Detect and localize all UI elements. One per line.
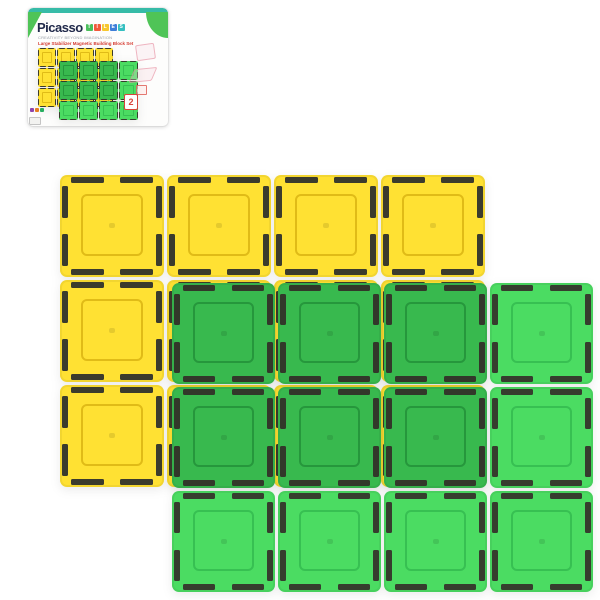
magnet-strip bbox=[550, 376, 582, 382]
magnet-strip bbox=[492, 342, 498, 373]
magnet-strip bbox=[386, 502, 392, 533]
magnet-strip bbox=[59, 63, 60, 69]
magnet-strip bbox=[117, 112, 118, 118]
magnet-strip bbox=[156, 444, 162, 476]
magnet-strip bbox=[81, 79, 87, 80]
magnet-strip bbox=[550, 584, 582, 590]
magnet-strip bbox=[178, 177, 210, 183]
magnet-strip bbox=[280, 294, 286, 325]
magnet-strip bbox=[263, 234, 269, 266]
tile-inner-outline bbox=[83, 85, 94, 96]
magnet-strip bbox=[77, 83, 78, 89]
magnet-strip bbox=[55, 50, 56, 56]
magnet-strip bbox=[477, 234, 483, 266]
magnet-strip bbox=[121, 119, 127, 120]
magnet-strip bbox=[38, 70, 39, 76]
magnet-strip bbox=[59, 48, 65, 49]
magnet-strip bbox=[97, 112, 98, 118]
magnet-strip bbox=[71, 387, 103, 393]
tile-inner-outline bbox=[63, 65, 74, 76]
magnet-strip bbox=[386, 550, 392, 581]
magnet-strip bbox=[62, 339, 68, 371]
magnet-strip bbox=[78, 48, 84, 49]
magnet-strip bbox=[479, 502, 485, 533]
magnet-strip bbox=[479, 342, 485, 373]
magnet-strip bbox=[137, 112, 138, 118]
mini-green-tile bbox=[59, 81, 78, 100]
box-corner-accent-right bbox=[146, 12, 168, 38]
magnet-strip bbox=[71, 282, 103, 288]
tile-inner-outline bbox=[83, 65, 94, 76]
magnet-strip bbox=[38, 99, 39, 105]
box-gray-chip bbox=[29, 117, 41, 125]
magnet-strip bbox=[61, 101, 67, 102]
magnet-strip bbox=[338, 376, 370, 382]
magnet-strip bbox=[48, 86, 54, 87]
magnet-strip bbox=[227, 177, 259, 183]
magnet-strip bbox=[156, 186, 162, 218]
yellow-tile bbox=[60, 385, 164, 487]
magnet-strip bbox=[492, 502, 498, 533]
magnet-strip bbox=[99, 103, 100, 109]
magnet-strip bbox=[71, 269, 103, 275]
certification-mark bbox=[30, 108, 34, 112]
magnet-strip bbox=[501, 480, 533, 486]
magnet-strip bbox=[550, 493, 582, 499]
magnet-strip bbox=[101, 61, 107, 62]
magnet-strip bbox=[90, 119, 96, 120]
magnet-strip bbox=[81, 119, 87, 120]
magnet-strip bbox=[232, 584, 264, 590]
magnet-strip bbox=[232, 389, 264, 395]
green-tile bbox=[384, 491, 487, 592]
magnet-strip bbox=[334, 177, 366, 183]
yellow-tile bbox=[60, 280, 164, 382]
mini-green-tile bbox=[59, 101, 78, 120]
magnet-strip bbox=[62, 291, 68, 323]
box-sketch-square bbox=[135, 43, 156, 61]
magnet-strip bbox=[81, 99, 87, 100]
magnet-strip bbox=[40, 88, 46, 89]
magnet-strip bbox=[267, 446, 273, 477]
box-art-green-grid bbox=[59, 61, 139, 121]
magnet-strip bbox=[48, 106, 54, 107]
magnet-strip bbox=[71, 374, 103, 380]
tile-inner-outline bbox=[63, 85, 74, 96]
magnet-strip bbox=[550, 389, 582, 395]
tile-inner-outline bbox=[42, 52, 53, 63]
magnet-strip bbox=[62, 396, 68, 428]
magnet-strip bbox=[174, 446, 180, 477]
magnet-strip bbox=[386, 342, 392, 373]
magnet-strip bbox=[117, 103, 118, 109]
magnet-strip bbox=[183, 285, 215, 291]
magnet-strip bbox=[386, 446, 392, 477]
magnet-strip bbox=[120, 479, 152, 485]
tile-center-mark bbox=[327, 331, 333, 336]
magnet-strip bbox=[97, 63, 98, 69]
magnet-strip bbox=[441, 177, 473, 183]
magnet-strip bbox=[77, 92, 78, 98]
magnet-strip bbox=[70, 81, 76, 82]
magnet-strip bbox=[55, 59, 56, 65]
magnet-strip bbox=[370, 186, 376, 218]
magnet-strip bbox=[119, 112, 120, 118]
green-tile bbox=[172, 387, 275, 488]
magnet-strip bbox=[57, 50, 58, 56]
magnet-strip bbox=[117, 83, 118, 89]
magnet-strip bbox=[119, 83, 120, 89]
mini-green-tile bbox=[99, 101, 118, 120]
magnet-strip bbox=[285, 177, 317, 183]
green-tile bbox=[384, 283, 487, 384]
magnet-strip bbox=[338, 584, 370, 590]
green-tile bbox=[278, 283, 381, 384]
magnet-strip bbox=[121, 79, 127, 80]
magnet-strip bbox=[97, 48, 103, 49]
mini-yellow-tile bbox=[38, 48, 56, 67]
magnet-strip bbox=[110, 81, 116, 82]
magnet-strip bbox=[550, 285, 582, 291]
magnet-strip bbox=[70, 61, 76, 62]
magnet-strip bbox=[395, 389, 427, 395]
magnet-strip bbox=[263, 186, 269, 218]
magnet-strip bbox=[61, 119, 67, 120]
brand-logo: Picasso TILES bbox=[37, 21, 125, 34]
certification-mark bbox=[35, 108, 39, 112]
green-tile bbox=[278, 387, 381, 488]
magnet-strip bbox=[99, 72, 100, 78]
magnet-strip bbox=[93, 50, 94, 56]
magnet-strip bbox=[90, 61, 96, 62]
magnet-strip bbox=[120, 177, 152, 183]
magnet-strip bbox=[77, 103, 78, 109]
magnet-strip bbox=[59, 103, 60, 109]
tile-center-mark bbox=[109, 328, 115, 333]
magnet-strip bbox=[338, 493, 370, 499]
brand-tagline: CREATIVITY BEYOND IMAGINATION bbox=[38, 35, 112, 40]
magnet-strip bbox=[120, 282, 152, 288]
magnet-strip bbox=[48, 66, 54, 67]
magnet-strip bbox=[79, 112, 80, 118]
magnet-strip bbox=[492, 550, 498, 581]
magnet-strip bbox=[61, 99, 67, 100]
magnet-strip bbox=[492, 398, 498, 429]
magnet-strip bbox=[267, 398, 273, 429]
magnet-strip bbox=[120, 374, 152, 380]
magnet-strip bbox=[183, 480, 215, 486]
magnet-strip bbox=[110, 99, 116, 100]
magnet-strip bbox=[59, 112, 60, 118]
tile-inner-outline bbox=[42, 92, 53, 103]
magnet-strip bbox=[81, 61, 87, 62]
tile-center-mark bbox=[221, 435, 227, 440]
magnet-strip bbox=[444, 493, 476, 499]
magnet-strip bbox=[479, 398, 485, 429]
magnet-strip bbox=[90, 101, 96, 102]
magnet-strip bbox=[101, 79, 107, 80]
magnet-strip bbox=[99, 112, 100, 118]
magnet-strip bbox=[81, 81, 87, 82]
magnet-strip bbox=[492, 446, 498, 477]
magnet-strip bbox=[59, 72, 60, 78]
magnet-strip bbox=[373, 294, 379, 325]
green-tile bbox=[384, 387, 487, 488]
magnet-strip bbox=[289, 376, 321, 382]
magnet-strip bbox=[38, 79, 39, 85]
magnet-strip bbox=[48, 68, 54, 69]
magnet-strip bbox=[117, 92, 118, 98]
magnet-strip bbox=[55, 90, 56, 96]
magnet-strip bbox=[156, 396, 162, 428]
magnet-strip bbox=[267, 550, 273, 581]
magnet-strip bbox=[48, 88, 54, 89]
tile-inner-outline bbox=[63, 105, 74, 116]
magnet-strip bbox=[232, 376, 264, 382]
magnet-strip bbox=[183, 389, 215, 395]
magnet-strip bbox=[444, 376, 476, 382]
brand-block-s: S bbox=[118, 24, 125, 31]
magnet-strip bbox=[232, 480, 264, 486]
magnet-strip bbox=[105, 48, 111, 49]
mini-green-tile bbox=[59, 61, 78, 80]
magnet-strip bbox=[62, 234, 68, 266]
magnet-strip bbox=[280, 502, 286, 533]
mini-green-tile bbox=[79, 101, 98, 120]
tile-center-mark bbox=[327, 435, 333, 440]
magnet-strip bbox=[280, 398, 286, 429]
green-tile bbox=[172, 491, 275, 592]
magnet-strip bbox=[86, 48, 92, 49]
certification-mark bbox=[40, 108, 44, 112]
brand-block-t: T bbox=[86, 24, 93, 31]
magnet-strip bbox=[395, 493, 427, 499]
magnet-strip bbox=[97, 92, 98, 98]
magnet-strip bbox=[285, 269, 317, 275]
magnet-strip bbox=[71, 177, 103, 183]
magnet-strip bbox=[338, 480, 370, 486]
magnet-strip bbox=[55, 79, 56, 85]
magnet-strip bbox=[373, 342, 379, 373]
magnet-strip bbox=[174, 502, 180, 533]
magnet-strip bbox=[334, 269, 366, 275]
green-tile bbox=[278, 491, 381, 592]
magnet-strip bbox=[392, 269, 424, 275]
brand-name: Picasso bbox=[37, 21, 83, 34]
magnet-strip bbox=[276, 234, 282, 266]
box-sketch-chip bbox=[136, 85, 147, 95]
tile-center-mark bbox=[539, 435, 545, 440]
magnet-strip bbox=[120, 269, 152, 275]
magnet-strip bbox=[585, 446, 591, 477]
green-tile-grid bbox=[172, 283, 596, 595]
magnet-strip bbox=[38, 50, 39, 56]
magnet-strip bbox=[441, 269, 473, 275]
magnet-strip bbox=[174, 294, 180, 325]
magnet-strip bbox=[289, 493, 321, 499]
magnet-strip bbox=[119, 72, 120, 78]
tile-center-mark bbox=[430, 223, 436, 228]
tile-center-mark bbox=[109, 223, 115, 228]
magnet-strip bbox=[101, 99, 107, 100]
tile-center-mark bbox=[323, 223, 329, 228]
tile-center-mark bbox=[221, 331, 227, 336]
magnet-strip bbox=[59, 92, 60, 98]
magnet-strip bbox=[38, 59, 39, 65]
tile-center-mark bbox=[216, 223, 222, 228]
magnet-strip bbox=[395, 376, 427, 382]
magnet-strip bbox=[76, 50, 77, 56]
magnet-strip bbox=[90, 81, 96, 82]
magnet-strip bbox=[40, 66, 46, 67]
magnet-strip bbox=[232, 493, 264, 499]
magnet-strip bbox=[395, 285, 427, 291]
magnet-strip bbox=[289, 389, 321, 395]
magnet-strip bbox=[121, 61, 127, 62]
magnet-strip bbox=[81, 101, 87, 102]
green-tile bbox=[490, 387, 593, 488]
magnet-strip bbox=[110, 79, 116, 80]
magnet-strip bbox=[174, 342, 180, 373]
magnet-strip bbox=[99, 83, 100, 89]
magnet-strip bbox=[479, 550, 485, 581]
magnet-strip bbox=[61, 79, 67, 80]
magnet-strip bbox=[101, 81, 107, 82]
magnet-strip bbox=[67, 48, 73, 49]
magnet-strip bbox=[386, 398, 392, 429]
magnet-strip bbox=[97, 72, 98, 78]
magnet-strip bbox=[444, 480, 476, 486]
brand-block-l: L bbox=[102, 24, 109, 31]
magnet-strip bbox=[479, 446, 485, 477]
magnet-strip bbox=[169, 186, 175, 218]
magnet-strip bbox=[99, 63, 100, 69]
magnet-strip bbox=[95, 50, 96, 56]
magnet-strip bbox=[61, 61, 67, 62]
magnet-strip bbox=[79, 92, 80, 98]
magnet-strip bbox=[267, 342, 273, 373]
brand-letter-blocks: TILES bbox=[86, 24, 125, 31]
mini-green-tile bbox=[79, 61, 98, 80]
tile-center-mark bbox=[433, 435, 439, 440]
magnet-strip bbox=[156, 291, 162, 323]
tile-center-mark bbox=[433, 539, 439, 544]
magnet-strip bbox=[40, 68, 46, 69]
magnet-strip bbox=[267, 294, 273, 325]
magnet-strip bbox=[70, 99, 76, 100]
mini-green-tile bbox=[99, 61, 118, 80]
magnet-strip bbox=[280, 446, 286, 477]
magnet-strip bbox=[280, 550, 286, 581]
magnet-strip bbox=[169, 234, 175, 266]
magnet-strip bbox=[392, 177, 424, 183]
yellow-tile bbox=[60, 175, 164, 277]
magnet-strip bbox=[40, 86, 46, 87]
magnet-strip bbox=[48, 48, 54, 49]
magnet-strip bbox=[130, 61, 136, 62]
magnet-strip bbox=[101, 101, 107, 102]
green-tile bbox=[490, 491, 593, 592]
magnet-strip bbox=[119, 63, 120, 69]
magnet-strip bbox=[70, 79, 76, 80]
magnet-strip bbox=[70, 119, 76, 120]
magnet-strip bbox=[373, 502, 379, 533]
magnet-strip bbox=[178, 269, 210, 275]
magnet-strip bbox=[55, 70, 56, 76]
magnet-strip bbox=[110, 61, 116, 62]
magnet-strip bbox=[267, 502, 273, 533]
mini-yellow-tile bbox=[38, 88, 56, 107]
magnet-strip bbox=[289, 480, 321, 486]
magnet-strip bbox=[62, 444, 68, 476]
magnet-strip bbox=[77, 63, 78, 69]
magnet-strip bbox=[79, 72, 80, 78]
magnet-strip bbox=[492, 294, 498, 325]
magnet-strip bbox=[77, 72, 78, 78]
magnet-strip bbox=[386, 294, 392, 325]
magnet-strip bbox=[117, 63, 118, 69]
magnet-strip bbox=[156, 339, 162, 371]
magnet-strip bbox=[501, 376, 533, 382]
magnet-strip bbox=[477, 186, 483, 218]
magnet-strip bbox=[289, 285, 321, 291]
magnet-strip bbox=[174, 550, 180, 581]
brand-block-e: E bbox=[110, 24, 117, 31]
magnet-strip bbox=[373, 446, 379, 477]
tile-inner-outline bbox=[42, 72, 53, 83]
magnet-strip bbox=[90, 79, 96, 80]
tile-inner-outline bbox=[83, 105, 94, 116]
magnet-strip bbox=[59, 83, 60, 89]
magnet-strip bbox=[383, 234, 389, 266]
magnet-strip bbox=[183, 493, 215, 499]
magnet-strip bbox=[156, 234, 162, 266]
tile-center-mark bbox=[327, 539, 333, 544]
magnet-strip bbox=[74, 50, 75, 56]
magnet-strip bbox=[444, 584, 476, 590]
mini-yellow-tile bbox=[38, 68, 56, 87]
magnet-strip bbox=[174, 398, 180, 429]
tile-center-mark bbox=[109, 433, 115, 438]
magnet-strip bbox=[110, 119, 116, 120]
magnet-strip bbox=[110, 101, 116, 102]
product-box-thumbnail: Picasso TILES CREATIVITY BEYOND IMAGINAT… bbox=[28, 8, 168, 126]
magnet-strip bbox=[501, 285, 533, 291]
magnet-strip bbox=[550, 480, 582, 486]
tile-center-mark bbox=[539, 539, 545, 544]
tile-inner-outline bbox=[103, 85, 114, 96]
magnet-strip bbox=[119, 92, 120, 98]
mini-green-tile bbox=[99, 81, 118, 100]
mini-green-tile bbox=[79, 81, 98, 100]
tile-center-mark bbox=[433, 331, 439, 336]
tile-center-mark bbox=[221, 539, 227, 544]
magnet-strip bbox=[120, 387, 152, 393]
magnet-strip bbox=[444, 389, 476, 395]
magnet-strip bbox=[585, 294, 591, 325]
magnet-strip bbox=[444, 285, 476, 291]
yellow-tile bbox=[167, 175, 271, 277]
magnet-strip bbox=[395, 480, 427, 486]
magnet-strip bbox=[585, 398, 591, 429]
magnet-strip bbox=[232, 285, 264, 291]
magnet-strip bbox=[77, 112, 78, 118]
magnet-strip bbox=[338, 285, 370, 291]
magnet-strip bbox=[585, 502, 591, 533]
yellow-tile bbox=[381, 175, 485, 277]
tile-center-mark bbox=[539, 331, 545, 336]
magnet-strip bbox=[40, 106, 46, 107]
